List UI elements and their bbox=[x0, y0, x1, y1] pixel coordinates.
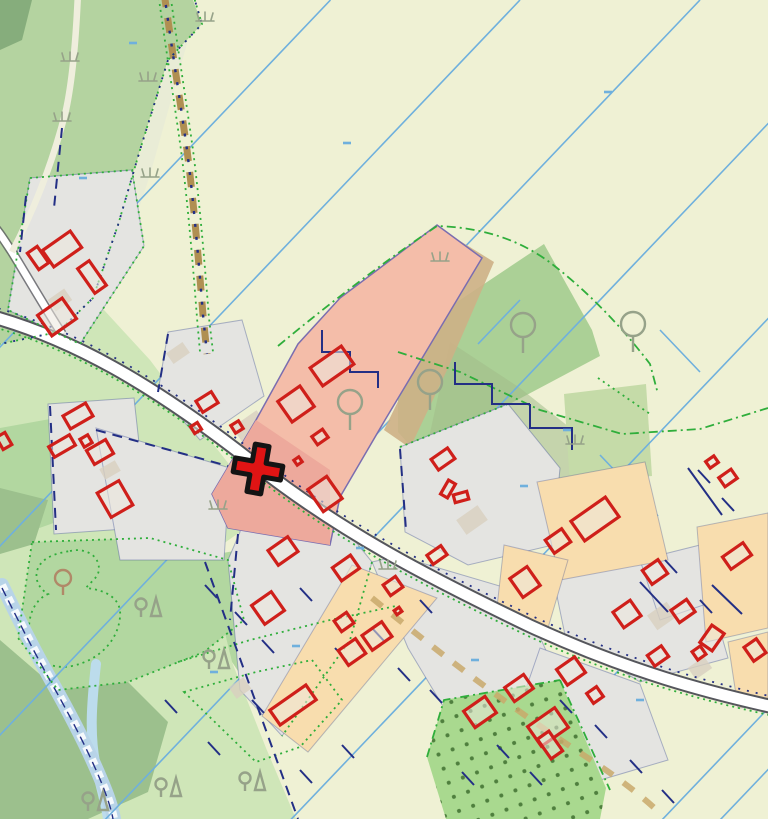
building-outline bbox=[190, 422, 201, 433]
building-outline bbox=[294, 457, 302, 465]
map-viewport[interactable] bbox=[0, 0, 768, 819]
building-outline bbox=[453, 491, 469, 502]
building-outline bbox=[231, 421, 243, 433]
parcel-orange bbox=[697, 513, 768, 642]
map-canvas[interactable] bbox=[0, 0, 768, 819]
building-outline bbox=[80, 435, 92, 447]
building-outline bbox=[394, 607, 402, 615]
